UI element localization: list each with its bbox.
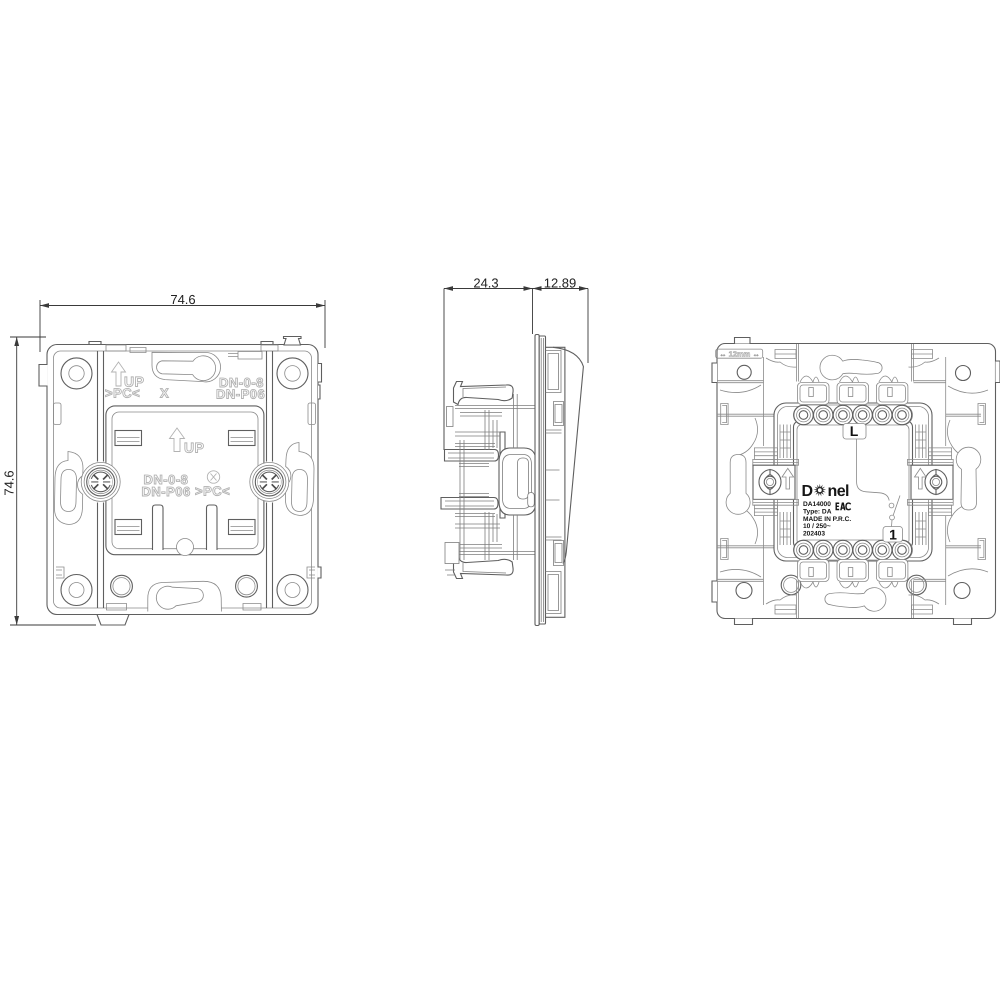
svg-text:10 / 250~: 10 / 250~ (803, 523, 831, 530)
svg-text:Type: DA: Type: DA (803, 508, 832, 515)
svg-text:X: X (160, 386, 169, 401)
svg-text:D: D (802, 483, 814, 500)
svg-text:1: 1 (889, 527, 897, 543)
svg-text:DN-P06: DN-P06 (142, 484, 191, 499)
svg-text:>PC<: >PC< (195, 484, 230, 499)
svg-text:MADE IN P.R.C.: MADE IN P.R.C. (803, 516, 851, 523)
svg-text:nel: nel (828, 483, 850, 500)
svg-text:DA14000: DA14000 (803, 501, 831, 508)
svg-text:74.6: 74.6 (2, 470, 17, 495)
svg-text:>PC<: >PC< (105, 386, 140, 401)
svg-text:DN-P06: DN-P06 (216, 387, 265, 402)
svg-text:L: L (850, 423, 859, 439)
svg-text:UP: UP (184, 440, 204, 456)
svg-text:↔ 12mm ↔: ↔ 12mm ↔ (719, 349, 760, 358)
svg-text:74.6: 74.6 (170, 292, 195, 307)
svg-text:202403: 202403 (803, 531, 825, 538)
